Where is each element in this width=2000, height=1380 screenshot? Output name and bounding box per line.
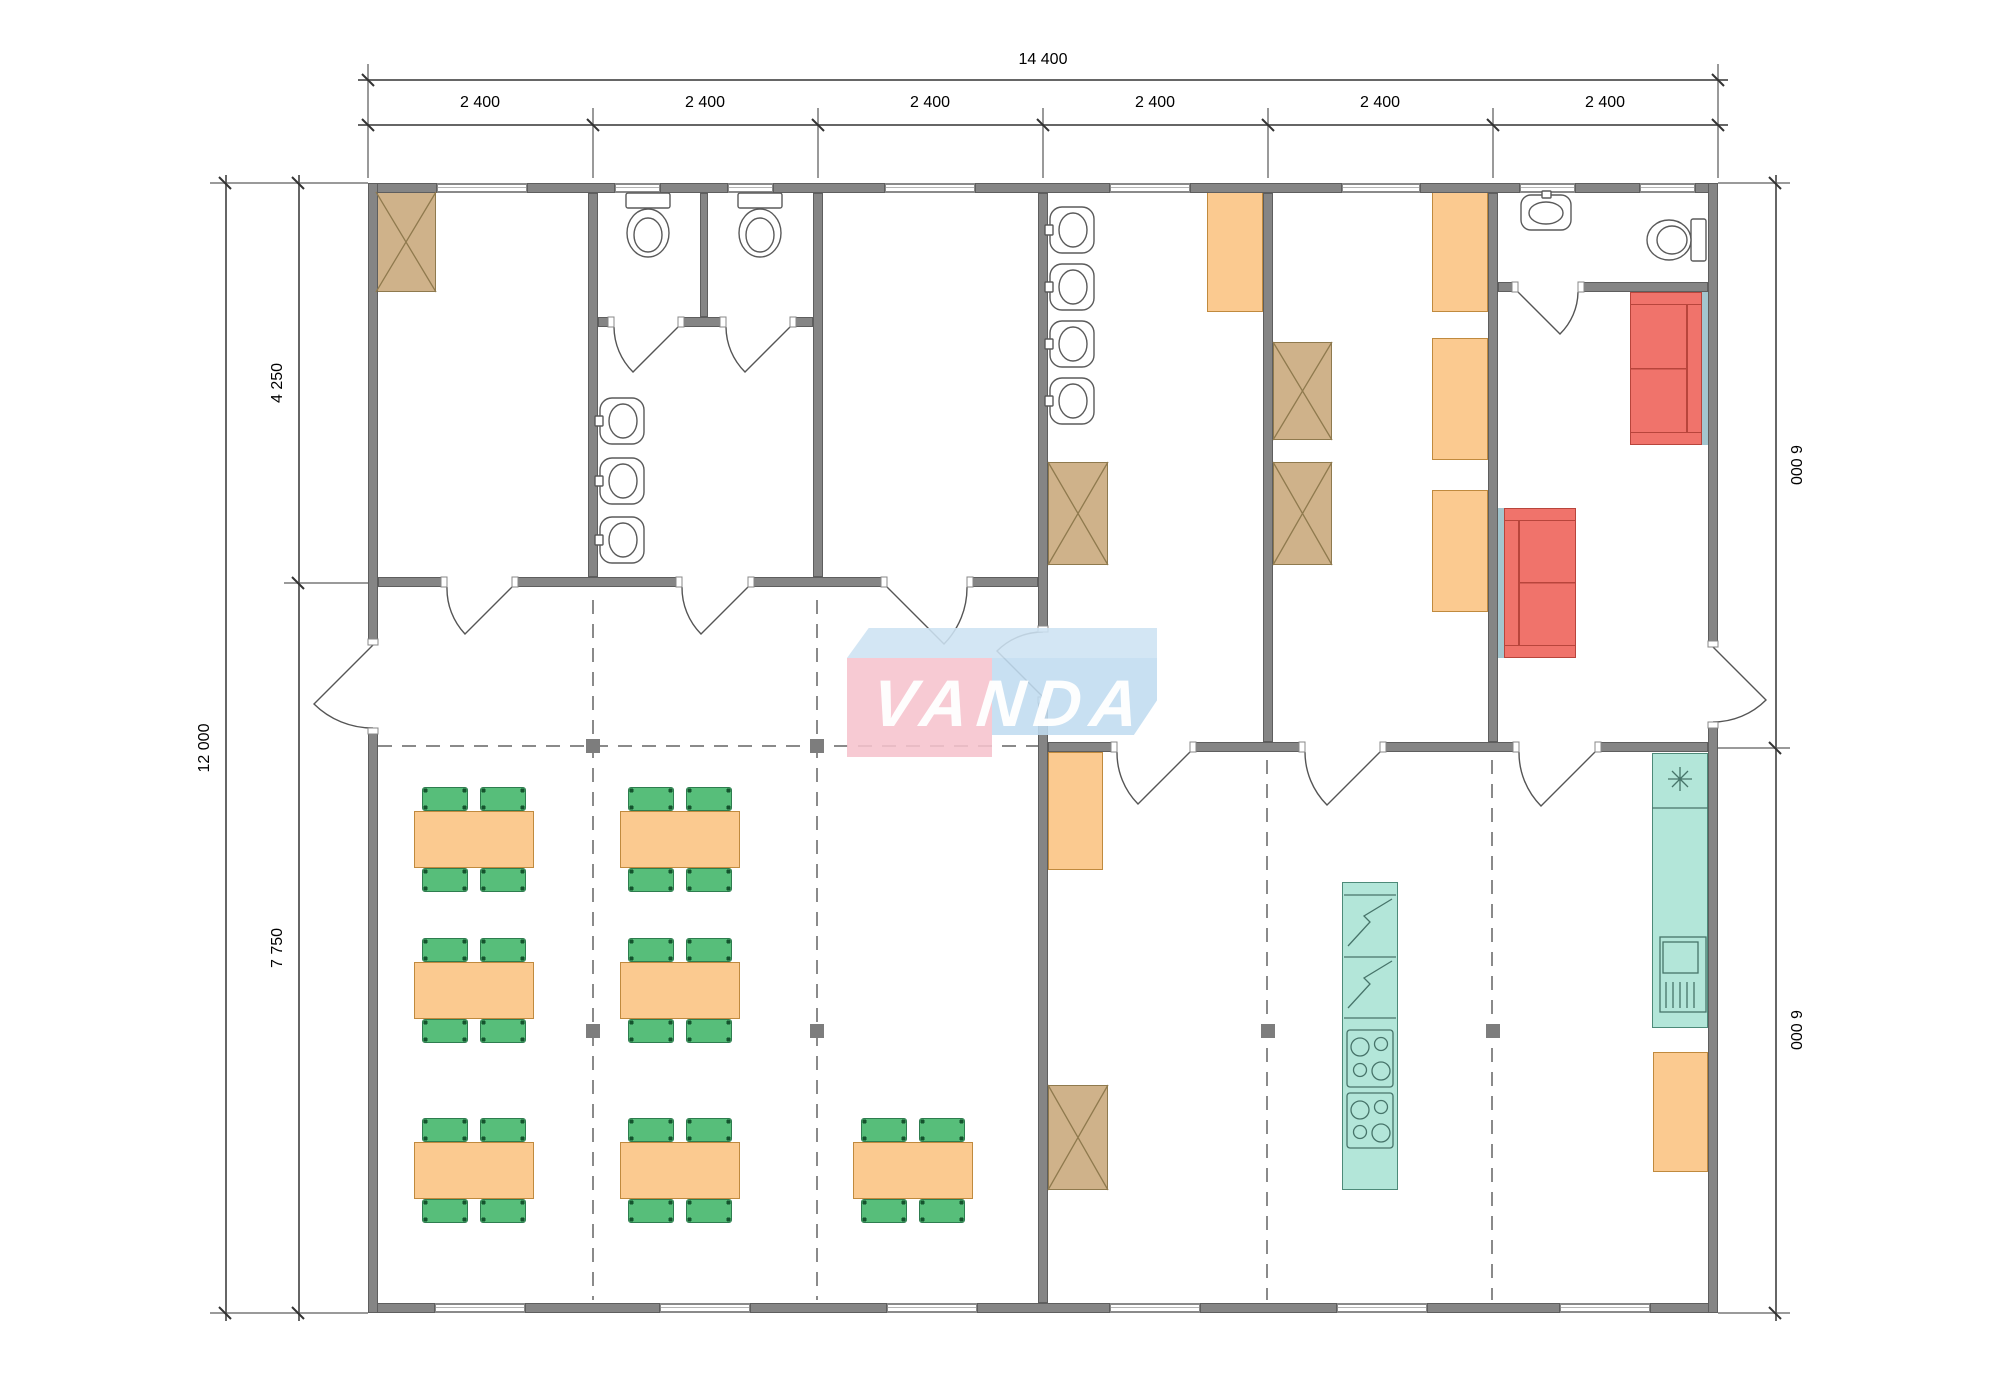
dimension-label: 12 000 — [196, 719, 214, 778]
dimension-line — [298, 175, 300, 1321]
dimension-label: 2 400 — [905, 94, 955, 112]
dimension-label: 6 000 — [1786, 440, 1804, 490]
dimension-label: 2 400 — [680, 94, 730, 112]
logo-text: VANDA — [865, 660, 1154, 746]
dimension-label: 2 400 — [1580, 94, 1630, 112]
floor-plan: VANDA 14 400 2 400 2 400 2 400 2 400 2 4… — [0, 0, 2000, 1380]
dimension-line — [225, 175, 227, 1321]
dimension-label: 2 400 — [1130, 94, 1180, 112]
dimension-label: 4 250 — [269, 358, 287, 408]
logo-top-face — [847, 628, 1157, 658]
dimension-label: 6 000 — [1786, 1005, 1804, 1055]
appliance-icon — [1344, 895, 1396, 1148]
dimension-label: 2 400 — [1355, 94, 1405, 112]
sink-icon — [595, 191, 1571, 563]
dimension-label: 7 750 — [269, 923, 287, 973]
dimension-line — [358, 79, 1728, 81]
dimension-label: 2 400 — [455, 94, 505, 112]
dimension-label: 14 400 — [1014, 51, 1073, 69]
counter-detail — [1652, 767, 1708, 1012]
